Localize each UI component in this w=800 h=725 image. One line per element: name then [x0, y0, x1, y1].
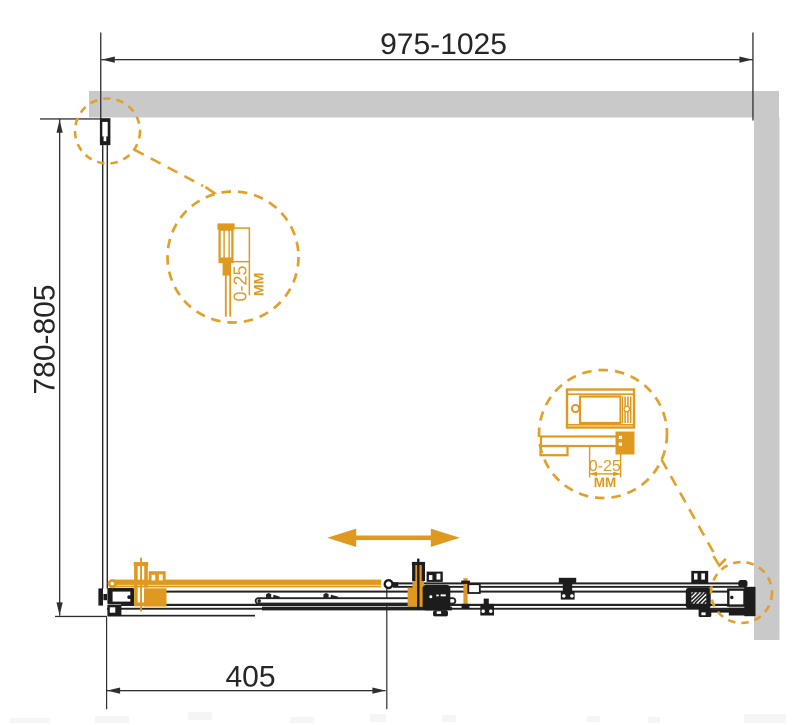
svg-text:0-25: 0-25: [589, 458, 621, 475]
svg-text:975-1025: 975-1025: [380, 28, 507, 61]
svg-text:780-805: 780-805: [29, 284, 62, 394]
svg-text:ММ: ММ: [250, 273, 266, 296]
svg-text:405: 405: [225, 661, 275, 694]
svg-text:ММ: ММ: [594, 475, 617, 490]
svg-text:0-25: 0-25: [230, 265, 250, 301]
